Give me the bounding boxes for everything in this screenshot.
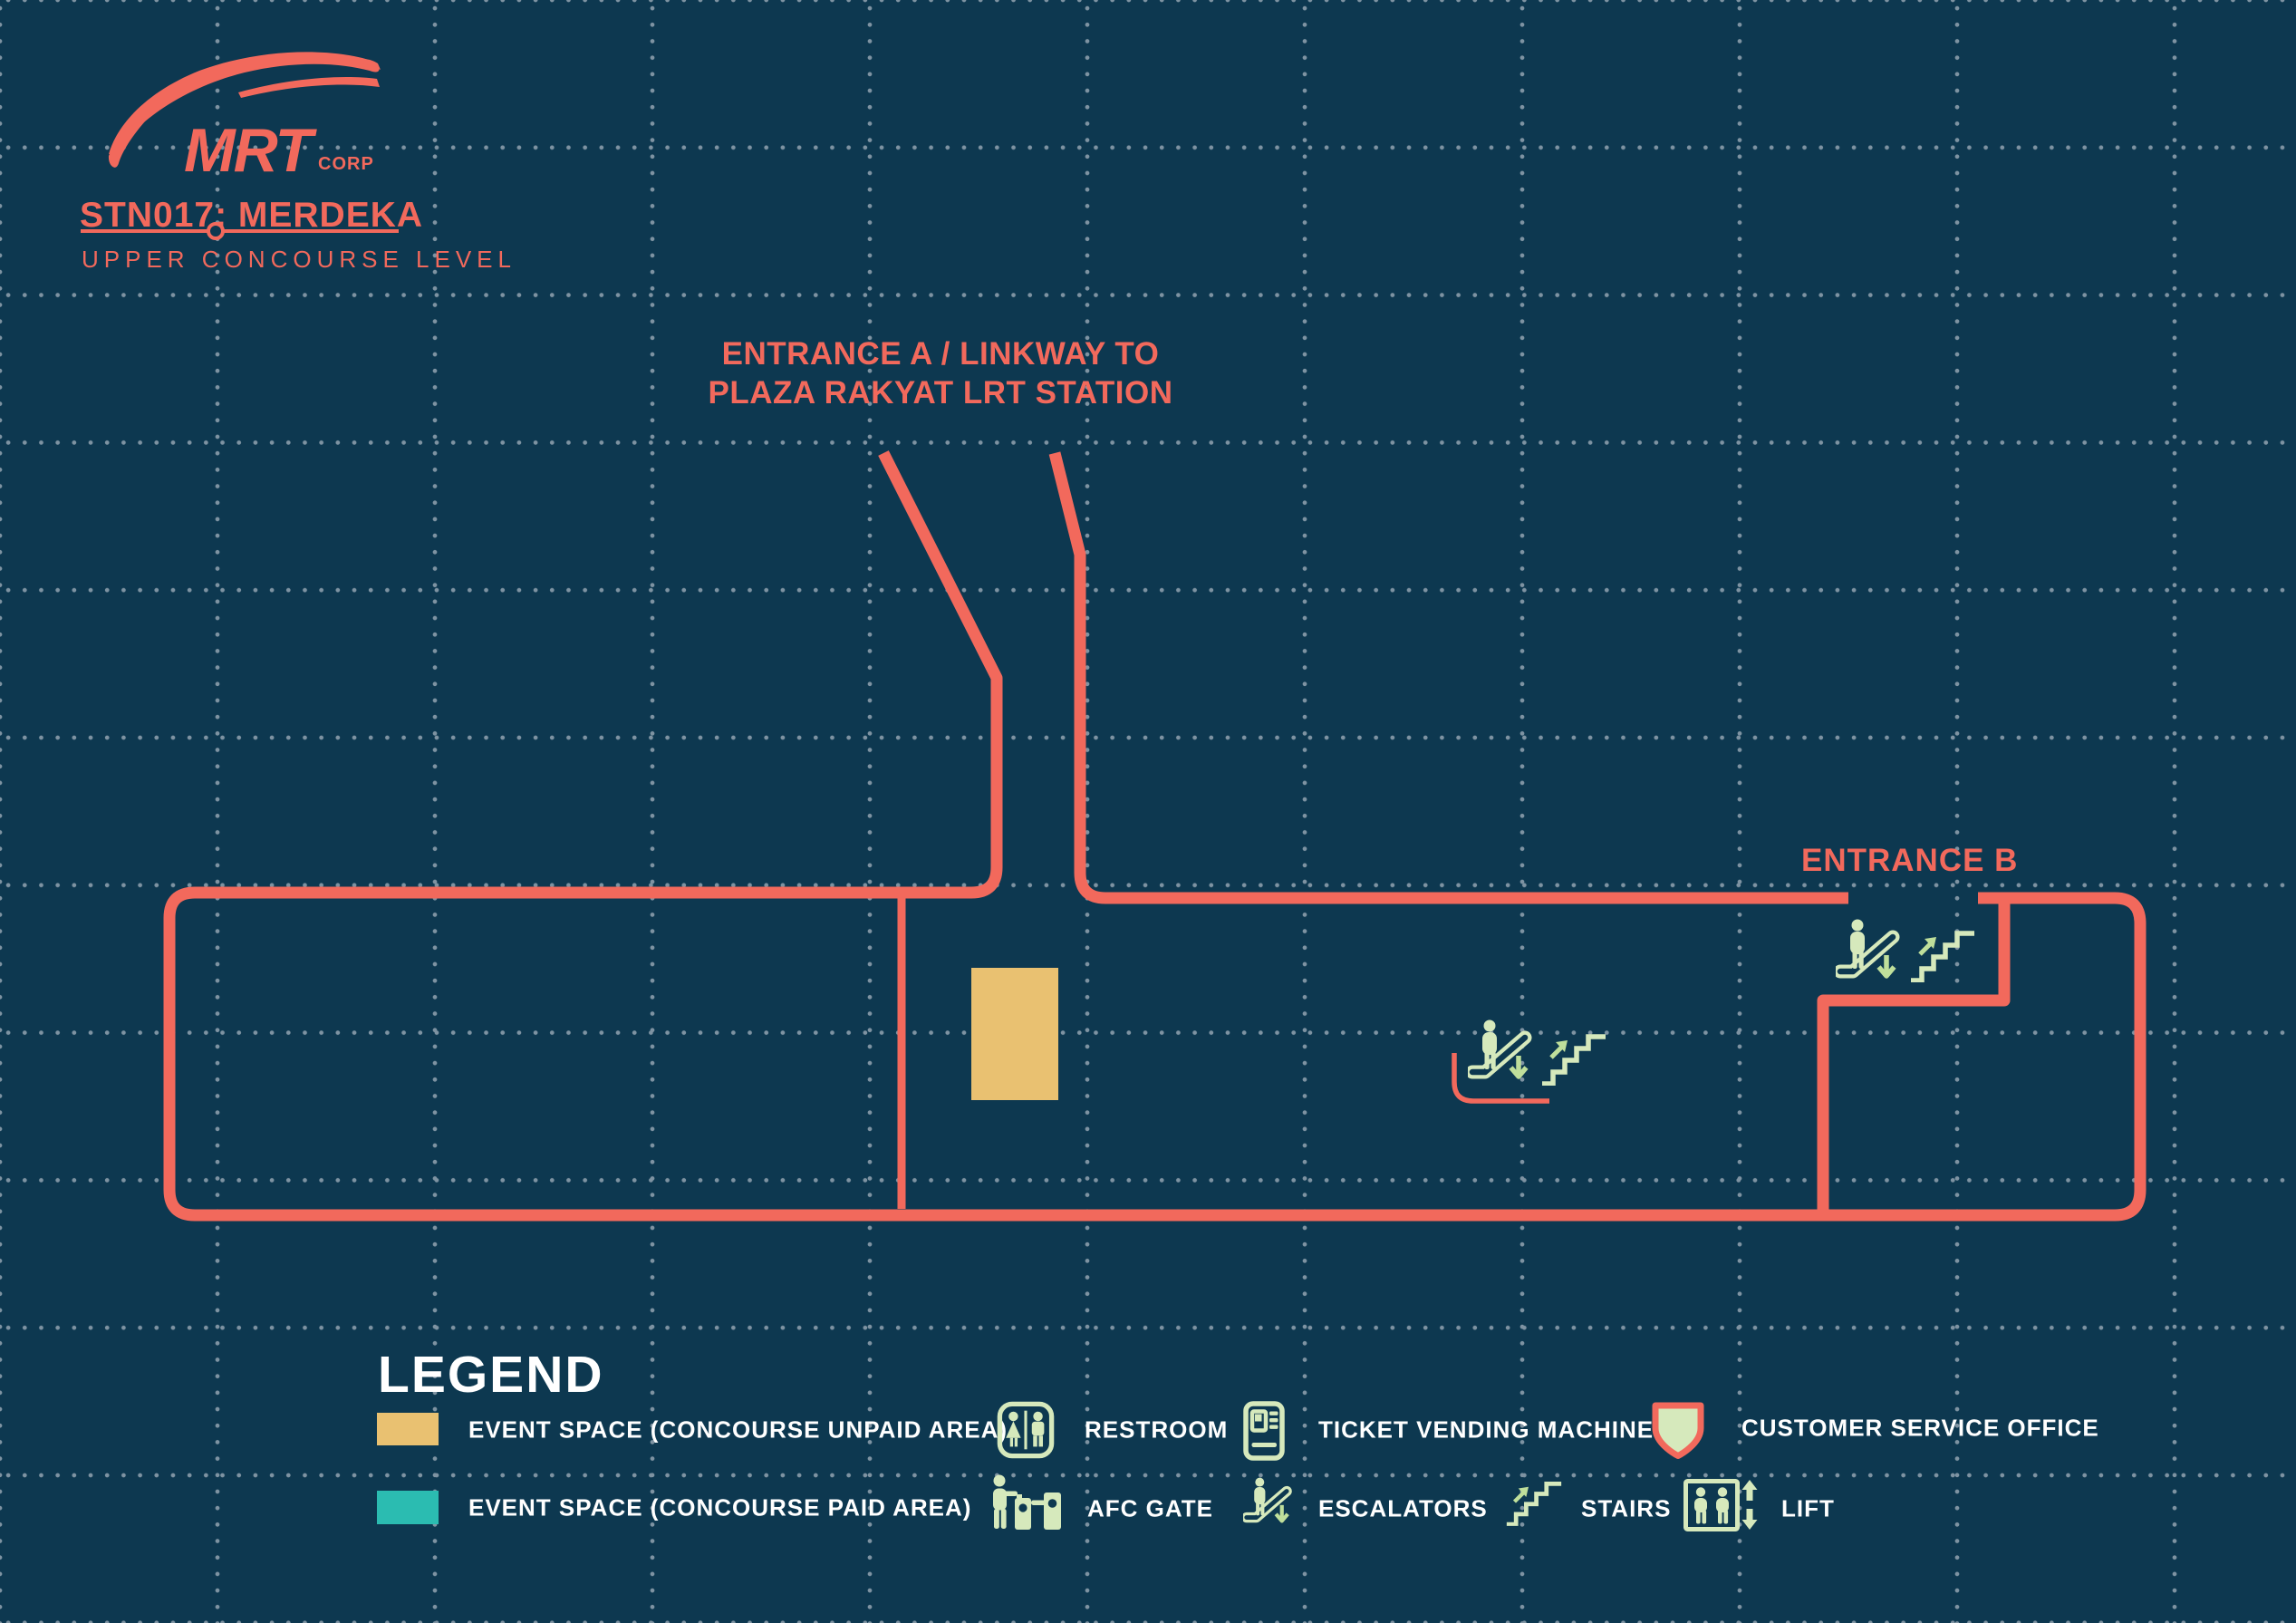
legend-label-customer-service-office: CUSTOMER SERVICE OFFICE <box>1741 1415 2099 1443</box>
station-map-page: MRT CORP STN017: MERDEKA UPPER CONCOURSE… <box>0 0 2296 1623</box>
legend-label-event-space-unpaid: EVENT SPACE (CONCOURSE UNPAID AREA) <box>468 1416 1008 1444</box>
escalator-down-icon <box>1472 1020 1527 1077</box>
entrance-b-stairs-up-icon <box>1911 933 1974 981</box>
event-space-unpaid-area <box>971 968 1058 1100</box>
legend-label-restroom: RESTROOM <box>1085 1416 1228 1444</box>
entrance-b-escalator-down-icon <box>1840 920 1895 977</box>
customer-service-office-icon <box>1651 1401 1705 1461</box>
restroom-icon <box>997 1400 1055 1460</box>
legend-label-lift: LIFT <box>1781 1495 1835 1523</box>
stairs-up-icon <box>1542 1037 1606 1084</box>
event-space-paid-swatch <box>377 1491 439 1524</box>
lift-icon <box>1683 1479 1763 1531</box>
legend-title: LEGEND <box>378 1345 604 1405</box>
concourse-outline-wall <box>169 453 2140 1215</box>
legend-label-event-space-paid: EVENT SPACE (CONCOURSE PAID AREA) <box>468 1494 971 1522</box>
legend-label-stairs: STAIRS <box>1581 1495 1671 1523</box>
floor-plan <box>0 0 2296 1623</box>
legend-label-ticket-vending-machine: TICKET VENDING MACHINE <box>1318 1416 1654 1444</box>
ticket-vending-machine-icon <box>1243 1401 1285 1461</box>
escalators-icon <box>1243 1475 1296 1528</box>
linkway-right-wall <box>1055 453 1848 898</box>
legend-label-escalators: ESCALATORS <box>1318 1495 1488 1523</box>
legend-label-afc-gate: AFC GATE <box>1087 1495 1213 1523</box>
stairs-icon <box>1506 1479 1562 1526</box>
afc-gate-icon <box>988 1473 1064 1530</box>
event-space-unpaid-swatch <box>377 1413 439 1445</box>
